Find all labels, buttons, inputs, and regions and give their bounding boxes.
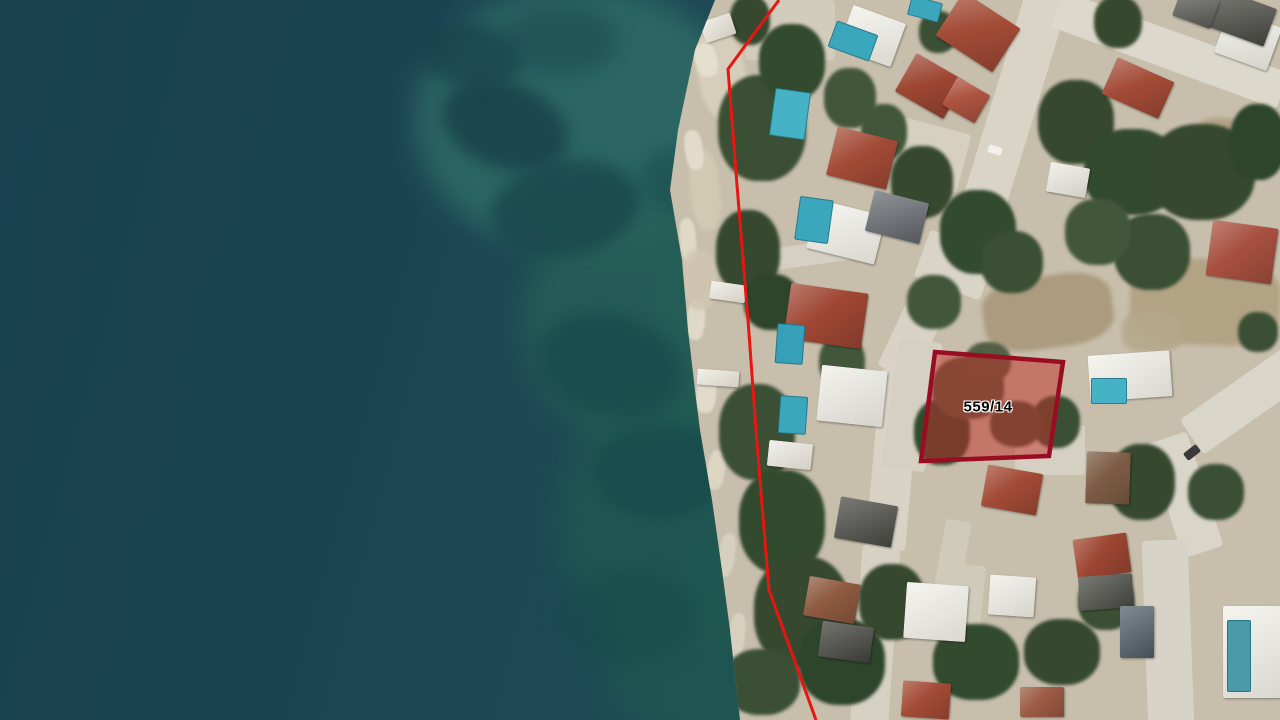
cadastral-overlay xyxy=(0,0,1280,720)
parcel-label: 559/14 xyxy=(964,399,1013,416)
cadastral-boundary-line xyxy=(728,0,816,720)
map-canvas[interactable]: 559/14 xyxy=(0,0,1280,720)
